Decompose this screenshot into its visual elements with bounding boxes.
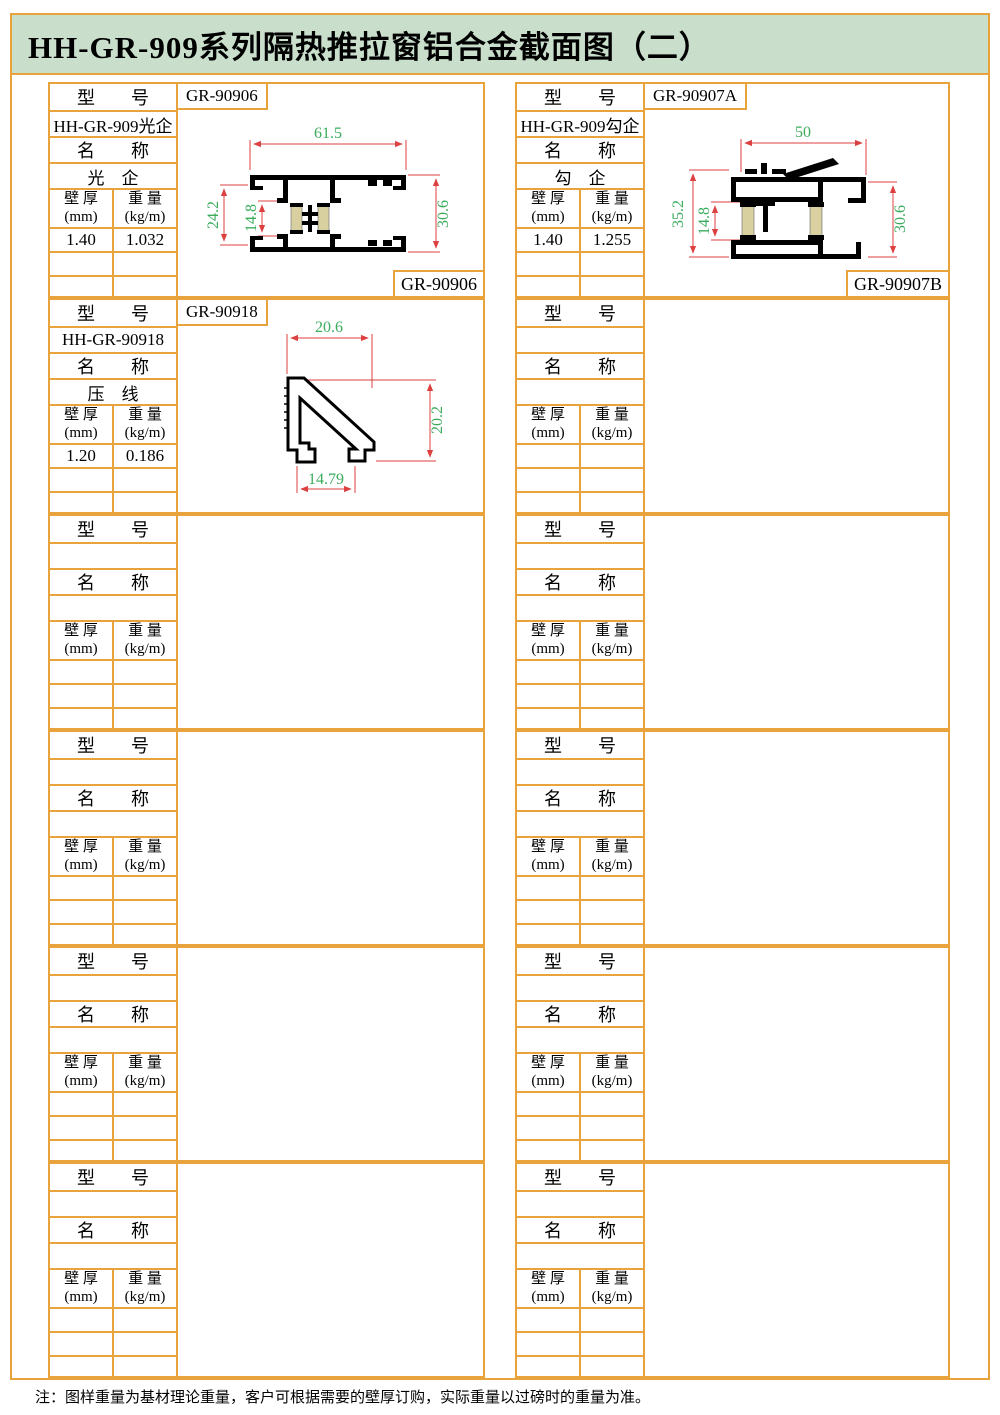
model-value (50, 976, 176, 1000)
drawing-area: GR-90918 (176, 298, 485, 514)
empty-cell (581, 277, 643, 296)
empty-cell (517, 1333, 579, 1355)
empty-cell (517, 1357, 579, 1376)
weight-header-line1: 重 量 (595, 1271, 629, 1288)
model-row-label: 型 号 (50, 516, 176, 542)
empty-cell (114, 709, 176, 728)
profile-block-empty: 型 号 名 称 壁 厚(mm) 重 量(kg/m) (515, 514, 950, 730)
weight-value (114, 661, 176, 683)
thickness-value (50, 1093, 112, 1115)
thickness-value (517, 1093, 579, 1115)
model-row-label: 型 号 (50, 1164, 176, 1190)
name-value (517, 380, 643, 404)
thickness-value (50, 877, 112, 899)
thickness-header: 壁 厚(mm) (50, 838, 112, 875)
name-value (517, 1244, 643, 1268)
weight-value: 0.186 (114, 445, 176, 467)
thickness-header-line2: (mm) (64, 1073, 97, 1090)
model-row-label: 型 号 (50, 84, 176, 110)
weight-value: 1.255 (581, 229, 643, 251)
profile-block-gr-90907: 型 号 HH-GR-909勾企 名 称 勾 企 壁 厚(mm) 重 量(kg/m… (515, 82, 950, 298)
spec-table: 型 号 名 称 壁 厚(mm) 重 量(kg/m) (48, 946, 178, 1162)
drawing-area (643, 730, 950, 946)
model-value (50, 544, 176, 568)
dim-label-top: 50 (795, 124, 811, 141)
model-value (517, 1192, 643, 1216)
name-row-label: 名 称 (517, 1218, 643, 1242)
dim-label-top: 61.5 (314, 125, 342, 142)
dim-label-right: 20.2 (429, 406, 446, 434)
empty-cell (581, 1333, 643, 1355)
spec-table: 型 号 名 称 壁 厚(mm) 重 量(kg/m) (515, 514, 645, 730)
dim-label-right: 30.6 (435, 200, 452, 228)
thickness-header: 壁 厚(mm) (517, 838, 579, 875)
weight-value (114, 1093, 176, 1115)
empty-cell (50, 709, 112, 728)
weight-value: 1.032 (114, 229, 176, 251)
weight-header: 重 量(kg/m) (114, 190, 176, 227)
profile-block-empty: 型 号 名 称 壁 厚(mm) 重 量(kg/m) (515, 1162, 950, 1378)
empty-cell (50, 1141, 112, 1160)
thickness-header-line1: 壁 厚 (531, 839, 565, 856)
name-row-label: 名 称 (517, 354, 643, 378)
weight-header: 重 量(kg/m) (114, 838, 176, 875)
model-value (50, 1192, 176, 1216)
model-value (517, 760, 643, 784)
thickness-header-line1: 壁 厚 (531, 407, 565, 424)
weight-header-line1: 重 量 (128, 623, 162, 640)
thickness-header-line1: 壁 厚 (64, 191, 98, 208)
empty-cell (581, 253, 643, 275)
corner-code-box: GR-90906 (393, 270, 485, 298)
weight-value (581, 445, 643, 467)
section-drawing-gr-90906: 61.5 24.2 14.8 30.6 (178, 84, 483, 296)
name-value: 光 企 (50, 164, 176, 188)
thickness-header-line2: (mm) (531, 209, 564, 226)
thickness-header: 壁 厚(mm) (50, 1270, 112, 1307)
weight-header-line1: 重 量 (595, 623, 629, 640)
aluminium-profile-outline (284, 378, 374, 462)
section-drawing-gr-90918: 20.6 20.2 14.79 (178, 300, 483, 512)
spec-table: 型 号 名 称 壁 厚(mm) 重 量(kg/m) (48, 1162, 178, 1378)
thickness-header-line2: (mm) (531, 857, 564, 874)
corner-code-box: GR-90907B (846, 270, 950, 298)
empty-cell (581, 925, 643, 944)
model-row-label: 型 号 (517, 516, 643, 542)
name-value (50, 812, 176, 836)
footnote: 注：图样重量为基材理论重量，客户可根据需要的壁厚订购，实际重量以过磅时的重量为准… (35, 1386, 650, 1407)
model-value (50, 760, 176, 784)
weight-header-line2: (kg/m) (592, 1073, 633, 1090)
empty-cell (114, 1141, 176, 1160)
spec-table: 型 号 名 称 壁 厚(mm) 重 量(kg/m) (48, 514, 178, 730)
model-row-label: 型 号 (50, 300, 176, 326)
model-value (517, 328, 643, 352)
profile-block-empty: 型 号 名 称 壁 厚(mm) 重 量(kg/m) (48, 514, 485, 730)
model-value (517, 544, 643, 568)
profile-block-empty: 型 号 名 称 壁 厚(mm) 重 量(kg/m) (48, 730, 485, 946)
weight-header: 重 量(kg/m) (114, 1054, 176, 1091)
empty-cell (50, 925, 112, 944)
weight-header-line2: (kg/m) (592, 1289, 633, 1306)
thickness-header-line2: (mm) (64, 641, 97, 658)
name-value (517, 812, 643, 836)
empty-cell (581, 901, 643, 923)
model-row-label: 型 号 (517, 948, 643, 974)
empty-cell (517, 709, 579, 728)
drawing-area: GR-90906 (176, 82, 485, 298)
weight-header-line1: 重 量 (128, 839, 162, 856)
weight-header: 重 量(kg/m) (114, 1270, 176, 1307)
model-row-label: 型 号 (517, 84, 643, 110)
dim-label-right: 30.6 (892, 205, 909, 233)
thickness-header-line2: (mm) (64, 1289, 97, 1306)
empty-cell (517, 493, 579, 512)
name-value: 压 线 (50, 380, 176, 404)
empty-cell (581, 685, 643, 707)
thickness-header-line2: (mm) (531, 1073, 564, 1090)
empty-cell (114, 1357, 176, 1376)
name-row-label: 名 称 (50, 786, 176, 810)
name-value (50, 1028, 176, 1052)
weight-header-line2: (kg/m) (592, 641, 633, 658)
thickness-header: 壁 厚(mm) (50, 1054, 112, 1091)
empty-cell (114, 277, 176, 296)
spec-table: 型 号 名 称 壁 厚(mm) 重 量(kg/m) (515, 730, 645, 946)
weight-header-line2: (kg/m) (125, 209, 166, 226)
spec-table: 型 号 HH-GR-909勾企 名 称 勾 企 壁 厚(mm) 重 量(kg/m… (515, 82, 645, 298)
weight-header-line2: (kg/m) (125, 1289, 166, 1306)
thickness-header: 壁 厚(mm) (517, 190, 579, 227)
weight-header-line2: (kg/m) (125, 641, 166, 658)
weight-header-line2: (kg/m) (125, 425, 166, 442)
empty-cell (517, 469, 579, 491)
empty-cell (114, 1333, 176, 1355)
empty-cell (114, 469, 176, 491)
empty-cell (517, 925, 579, 944)
thickness-header-line1: 壁 厚 (64, 623, 98, 640)
name-value: 勾 企 (517, 164, 643, 188)
thickness-header-line2: (mm) (531, 641, 564, 658)
weight-header-line1: 重 量 (595, 191, 629, 208)
name-row-label: 名 称 (50, 570, 176, 594)
weight-value (114, 1309, 176, 1331)
empty-cell (114, 901, 176, 923)
empty-cell (581, 493, 643, 512)
thickness-header-line2: (mm) (64, 209, 97, 226)
model-row-label: 型 号 (517, 1164, 643, 1190)
name-row-label: 名 称 (517, 138, 643, 162)
model-row-label: 型 号 (517, 732, 643, 758)
thickness-header-line2: (mm) (64, 857, 97, 874)
weight-header-line1: 重 量 (128, 1271, 162, 1288)
empty-cell (114, 685, 176, 707)
spec-table: 型 号 名 称 壁 厚(mm) 重 量(kg/m) (515, 298, 645, 514)
empty-cell (114, 253, 176, 275)
empty-cell (50, 1333, 112, 1355)
thickness-value (517, 1309, 579, 1331)
weight-header-line1: 重 量 (595, 1055, 629, 1072)
weight-header: 重 量(kg/m) (581, 190, 643, 227)
thickness-header: 壁 厚(mm) (50, 622, 112, 659)
thickness-header-line2: (mm) (531, 425, 564, 442)
thickness-value: 1.40 (517, 229, 579, 251)
model-code-box: GR-90918 (176, 298, 268, 326)
weight-header-line1: 重 量 (128, 1055, 162, 1072)
weight-header-line2: (kg/m) (592, 209, 633, 226)
thickness-header-line1: 壁 厚 (64, 407, 98, 424)
model-row-label: 型 号 (50, 732, 176, 758)
weight-header-line2: (kg/m) (125, 857, 166, 874)
empty-cell (581, 1357, 643, 1376)
weight-header: 重 量(kg/m) (581, 1270, 643, 1307)
thickness-value: 1.40 (50, 229, 112, 251)
empty-cell (581, 709, 643, 728)
empty-cell (50, 901, 112, 923)
drawing-area (176, 1162, 485, 1378)
name-value (517, 1028, 643, 1052)
weight-value (581, 661, 643, 683)
weight-header: 重 量(kg/m) (581, 406, 643, 443)
empty-cell (50, 469, 112, 491)
weight-header-line1: 重 量 (128, 191, 162, 208)
empty-cell (581, 469, 643, 491)
empty-cell (50, 253, 112, 275)
empty-cell (50, 1117, 112, 1139)
name-value (50, 596, 176, 620)
profile-block-empty: 型 号 名 称 壁 厚(mm) 重 量(kg/m) (48, 1162, 485, 1378)
name-row-label: 名 称 (50, 138, 176, 162)
dim-label-bottom: 14.79 (308, 471, 344, 488)
weight-value (581, 1093, 643, 1115)
drawing-area (643, 946, 950, 1162)
thickness-value: 1.20 (50, 445, 112, 467)
profile-block-empty: 型 号 名 称 壁 厚(mm) 重 量(kg/m) (515, 730, 950, 946)
thickness-header-line2: (mm) (64, 425, 97, 442)
dim-label-left: 35.2 (670, 200, 687, 228)
thickness-header: 壁 厚(mm) (517, 1054, 579, 1091)
weight-header: 重 量(kg/m) (581, 622, 643, 659)
page-frame: HH-GR-909系列隔热推拉窗铝合金截面图（二） 型 号 HH-GR-909光… (10, 13, 990, 1380)
spec-table: 型 号 HH-GR-90918 名 称 压 线 壁 厚(mm) 重 量(kg/m… (48, 298, 178, 514)
weight-header: 重 量(kg/m) (114, 622, 176, 659)
model-value: HH-GR-90918 (50, 328, 176, 352)
profile-block-empty: 型 号 名 称 壁 厚(mm) 重 量(kg/m) (515, 298, 950, 514)
empty-cell (517, 277, 579, 296)
weight-value (114, 877, 176, 899)
thickness-value (517, 445, 579, 467)
profile-block-empty: 型 号 名 称 壁 厚(mm) 重 量(kg/m) (48, 946, 485, 1162)
thermal-break-strips (742, 202, 822, 240)
dim-label-mid: 14.8 (696, 207, 713, 235)
empty-cell (517, 253, 579, 275)
empty-cell (50, 685, 112, 707)
spec-table: 型 号 名 称 壁 厚(mm) 重 量(kg/m) (515, 946, 645, 1162)
weight-header-line2: (kg/m) (592, 425, 633, 442)
profile-block-empty: 型 号 名 称 壁 厚(mm) 重 量(kg/m) (515, 946, 950, 1162)
thickness-header: 壁 厚(mm) (50, 406, 112, 443)
weight-header-line1: 重 量 (128, 407, 162, 424)
section-drawing-gr-90907: 50 35.2 14.8 30.6 (645, 84, 948, 296)
spec-table: 型 号 HH-GR-909光企 名 称 光 企 壁 厚(mm) 重 量(kg/m… (48, 82, 178, 298)
empty-cell (114, 493, 176, 512)
empty-cell (50, 277, 112, 296)
thickness-header-line1: 壁 厚 (531, 623, 565, 640)
thickness-header-line1: 壁 厚 (64, 1271, 98, 1288)
weight-value (581, 1309, 643, 1331)
empty-cell (114, 1117, 176, 1139)
empty-cell (50, 493, 112, 512)
thickness-header: 壁 厚(mm) (517, 1270, 579, 1307)
name-row-label: 名 称 (517, 786, 643, 810)
weight-header: 重 量(kg/m) (114, 406, 176, 443)
model-value (517, 976, 643, 1000)
drawing-area (176, 946, 485, 1162)
profile-block-gr-90906: 型 号 HH-GR-909光企 名 称 光 企 壁 厚(mm) 重 量(kg/m… (48, 82, 485, 298)
dim-label-top: 20.6 (315, 319, 343, 336)
name-row-label: 名 称 (50, 1002, 176, 1026)
thickness-header: 壁 厚(mm) (517, 406, 579, 443)
name-row-label: 名 称 (517, 1002, 643, 1026)
thickness-value (517, 661, 579, 683)
name-row-label: 名 称 (50, 354, 176, 378)
drawing-area (643, 298, 950, 514)
weight-header-line1: 重 量 (595, 839, 629, 856)
thickness-header-line1: 壁 厚 (64, 839, 98, 856)
name-value (50, 1244, 176, 1268)
spec-table: 型 号 名 称 壁 厚(mm) 重 量(kg/m) (48, 730, 178, 946)
name-row-label: 名 称 (517, 570, 643, 594)
model-row-label: 型 号 (50, 948, 176, 974)
dim-extension-lines (258, 201, 281, 236)
empty-cell (517, 901, 579, 923)
thickness-value (50, 661, 112, 683)
model-code-box: GR-90906 (176, 82, 268, 110)
weight-header-line2: (kg/m) (592, 857, 633, 874)
empty-cell (517, 1141, 579, 1160)
profile-block-gr-90918: 型 号 HH-GR-90918 名 称 压 线 壁 厚(mm) 重 量(kg/m… (48, 298, 485, 514)
empty-cell (50, 1357, 112, 1376)
model-value: HH-GR-909光企 (50, 112, 176, 136)
thickness-header-line1: 壁 厚 (64, 1055, 98, 1072)
drawing-area (176, 730, 485, 946)
thickness-header: 壁 厚(mm) (517, 622, 579, 659)
weight-header-line1: 重 量 (595, 407, 629, 424)
empty-cell (581, 1141, 643, 1160)
thickness-value (50, 1309, 112, 1331)
weight-header: 重 量(kg/m) (581, 838, 643, 875)
page-title: HH-GR-909系列隔热推拉窗铝合金截面图（二） (28, 22, 711, 67)
thickness-header-line1: 壁 厚 (531, 191, 565, 208)
thickness-value (517, 877, 579, 899)
name-row-label: 名 称 (50, 1218, 176, 1242)
empty-cell (114, 925, 176, 944)
name-value (517, 596, 643, 620)
empty-cell (517, 685, 579, 707)
thickness-header-line1: 壁 厚 (531, 1055, 565, 1072)
thickness-header-line1: 壁 厚 (531, 1271, 565, 1288)
weight-value (581, 877, 643, 899)
catalog-page: HH-GR-909系列隔热推拉窗铝合金截面图（二） 型 号 HH-GR-909光… (0, 0, 1000, 1415)
drawing-area: GR-90907A (643, 82, 950, 298)
drawing-area (643, 1162, 950, 1378)
title-bar: HH-GR-909系列隔热推拉窗铝合金截面图（二） (12, 15, 988, 75)
dim-label-mid: 14.8 (243, 204, 260, 232)
thickness-header: 壁 厚(mm) (50, 190, 112, 227)
empty-cell (517, 1117, 579, 1139)
model-row-label: 型 号 (517, 300, 643, 326)
dim-label-left: 24.2 (205, 201, 222, 229)
weight-header: 重 量(kg/m) (581, 1054, 643, 1091)
drawing-area (643, 514, 950, 730)
spec-table: 型 号 名 称 壁 厚(mm) 重 量(kg/m) (515, 1162, 645, 1378)
model-code-box: GR-90907A (643, 82, 747, 110)
thickness-header-line2: (mm) (531, 1289, 564, 1306)
weight-header-line2: (kg/m) (125, 1073, 166, 1090)
empty-cell (581, 1117, 643, 1139)
drawing-area (176, 514, 485, 730)
model-value: HH-GR-909勾企 (517, 112, 643, 136)
